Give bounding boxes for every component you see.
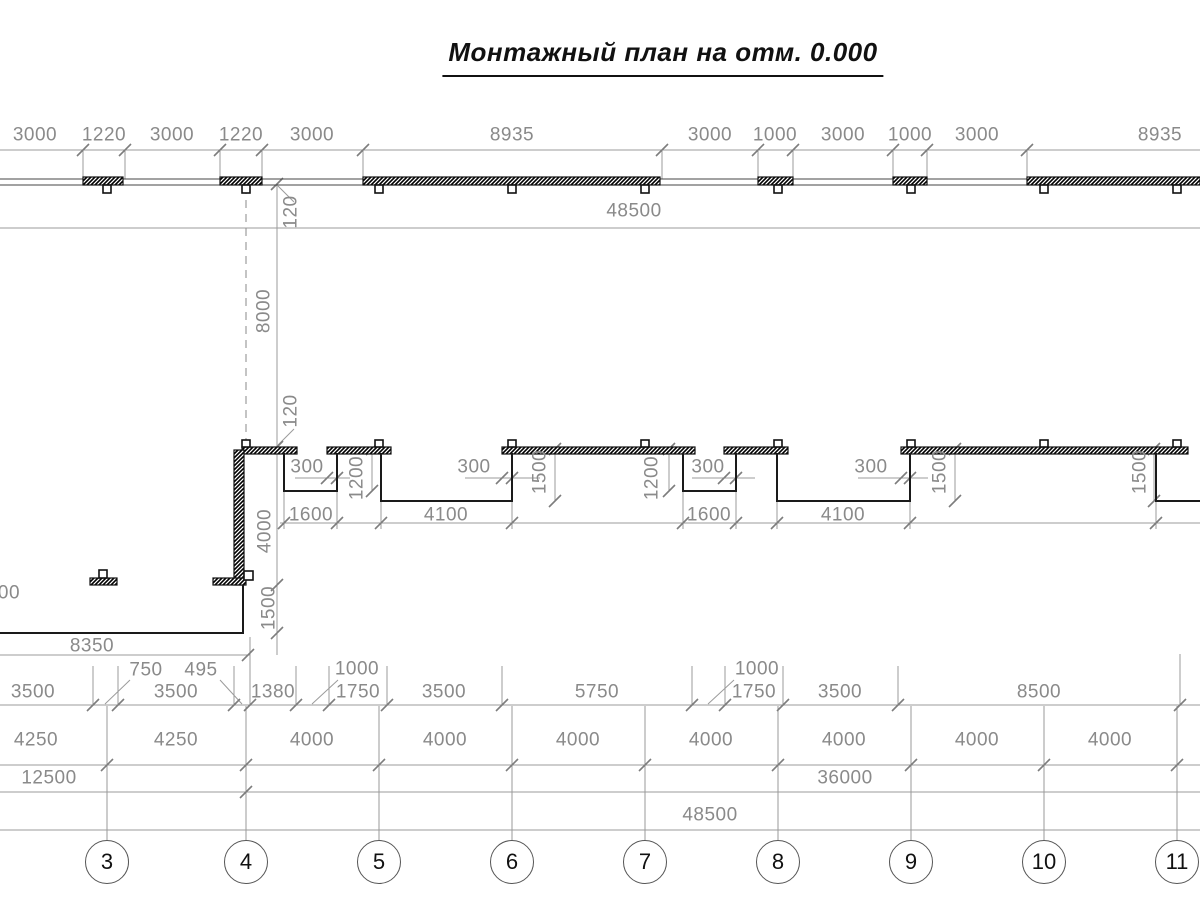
axis-bubble-4: 4	[224, 840, 268, 884]
row4-dim-0: 12500	[21, 769, 76, 788]
row4-dim-1: 36000	[817, 769, 872, 788]
axis-bubble-11: 11	[1155, 840, 1199, 884]
row3-dim-8: 4000	[1088, 731, 1132, 750]
axis-bubble-5: 5	[357, 840, 401, 884]
mid-wall-plates	[242, 447, 1188, 454]
top-dim-6: 3000	[688, 126, 732, 145]
axis-label-7: 7	[639, 849, 651, 875]
top-dim-8: 3000	[821, 126, 865, 145]
row3-dim-1: 4250	[154, 731, 198, 750]
top-wall-plates	[83, 177, 1200, 185]
axis-label-10: 10	[1032, 849, 1056, 875]
dim-overhang-1: 300	[290, 458, 323, 477]
row2-dim-5: 1000	[335, 660, 379, 679]
axis-label-8: 8	[772, 849, 784, 875]
axis-label-6: 6	[506, 849, 518, 875]
row3-dim-3: 4000	[423, 731, 467, 750]
dim-left-wall-1500: 1500	[260, 586, 279, 630]
top-overall-dim: 48500	[606, 202, 661, 221]
dim-notch-width-1600-1: 1600	[289, 506, 333, 525]
axis-label-5: 5	[373, 849, 385, 875]
axis-bubble-9: 9	[889, 840, 933, 884]
row2-dim-1: 750	[129, 661, 162, 680]
bottom-left-plate	[90, 578, 117, 585]
dim-8350: 8350	[70, 637, 114, 656]
dim-notch-depth-1500-2: 1500	[931, 450, 950, 494]
drawing-canvas: Монтажный план на отм. 0.000 3000 1220 3…	[0, 0, 1200, 900]
row2-dim-0: 3500	[11, 683, 55, 702]
axis-label-4: 4	[240, 849, 252, 875]
dim-notch-depth-1500-1: 1500	[531, 450, 550, 494]
dim-notch-depth-1200-2: 1200	[643, 456, 662, 500]
axis-bubble-10: 10	[1022, 840, 1066, 884]
dim-wall-thickness-top: 120	[282, 195, 301, 228]
bottom-left-plate-tab	[99, 570, 107, 578]
row2-dim-7: 3500	[422, 683, 466, 702]
row2-dim-2: 3500	[154, 683, 198, 702]
dim-overhang-3: 300	[691, 458, 724, 477]
row3-dim-4: 4000	[556, 731, 600, 750]
row3-dim-7: 4000	[955, 731, 999, 750]
extension-lines	[83, 151, 1180, 706]
dim-notch-width-1600-2: 1600	[687, 506, 731, 525]
row3-dim-0: 4250	[14, 731, 58, 750]
dim-wall-thickness-bottom: 120	[282, 394, 301, 427]
row2-dim-12: 8500	[1017, 683, 1061, 702]
row2-dim-6: 1750	[336, 683, 380, 702]
row3-dim-2: 4000	[290, 731, 334, 750]
leader-lines	[105, 186, 734, 704]
dim-left-wall-4000: 4000	[256, 509, 275, 553]
axis-bubble-7: 7	[623, 840, 667, 884]
row3-dim-6: 4000	[822, 731, 866, 750]
top-dim-9: 1000	[888, 126, 932, 145]
top-dim-2: 3000	[150, 126, 194, 145]
top-dim-7: 1000	[753, 126, 797, 145]
axis-bubble-3: 3	[85, 840, 129, 884]
drawing-title: Монтажный план на отм. 0.000	[442, 37, 883, 77]
dim-notch-width-4100-1: 4100	[424, 506, 468, 525]
top-dim-4: 3000	[290, 126, 334, 145]
axis-label-3: 3	[101, 849, 113, 875]
dim-wall-spacing-8000: 8000	[255, 289, 274, 333]
row2-dim-9: 1000	[735, 660, 779, 679]
row3-dim-5: 4000	[689, 731, 733, 750]
top-dim-11: 8935	[1138, 126, 1182, 145]
grid-lines	[107, 706, 1177, 840]
row2-dim-8: 5750	[575, 683, 619, 702]
dim-notch-depth-1500-3: 1500	[1131, 450, 1150, 494]
top-dim-1: 1220	[82, 126, 126, 145]
left-wall	[213, 450, 246, 585]
dim-notch-width-4100-2: 4100	[821, 506, 865, 525]
notch-outlines	[284, 453, 1200, 501]
axis-bubble-6: 6	[490, 840, 534, 884]
top-dim-5: 8935	[490, 126, 534, 145]
left-wall-tab	[244, 571, 253, 580]
row2-dim-11: 3500	[818, 683, 862, 702]
axis-bubble-8: 8	[756, 840, 800, 884]
dim-overhang-4: 300	[854, 458, 887, 477]
axis-label-11: 11	[1166, 849, 1189, 875]
dim-partial-cutoff: 00	[0, 584, 20, 603]
bottom-left-outline	[0, 585, 243, 633]
dim-notch-depth-1200-1: 1200	[348, 456, 367, 500]
row2-dim-10: 1750	[732, 683, 776, 702]
top-dim-10: 3000	[955, 126, 999, 145]
row2-dim-4: 1380	[251, 683, 295, 702]
top-anchor-tabs	[103, 185, 1181, 193]
axis-label-9: 9	[905, 849, 917, 875]
mid-anchor-tabs	[242, 440, 1181, 447]
dim-overhang-2: 300	[457, 458, 490, 477]
bottom-overall-dim: 48500	[682, 806, 737, 825]
top-dim-3: 1220	[219, 126, 263, 145]
row2-dim-3: 495	[184, 661, 217, 680]
top-dim-0: 3000	[13, 126, 57, 145]
dimension-lines	[0, 150, 1200, 830]
